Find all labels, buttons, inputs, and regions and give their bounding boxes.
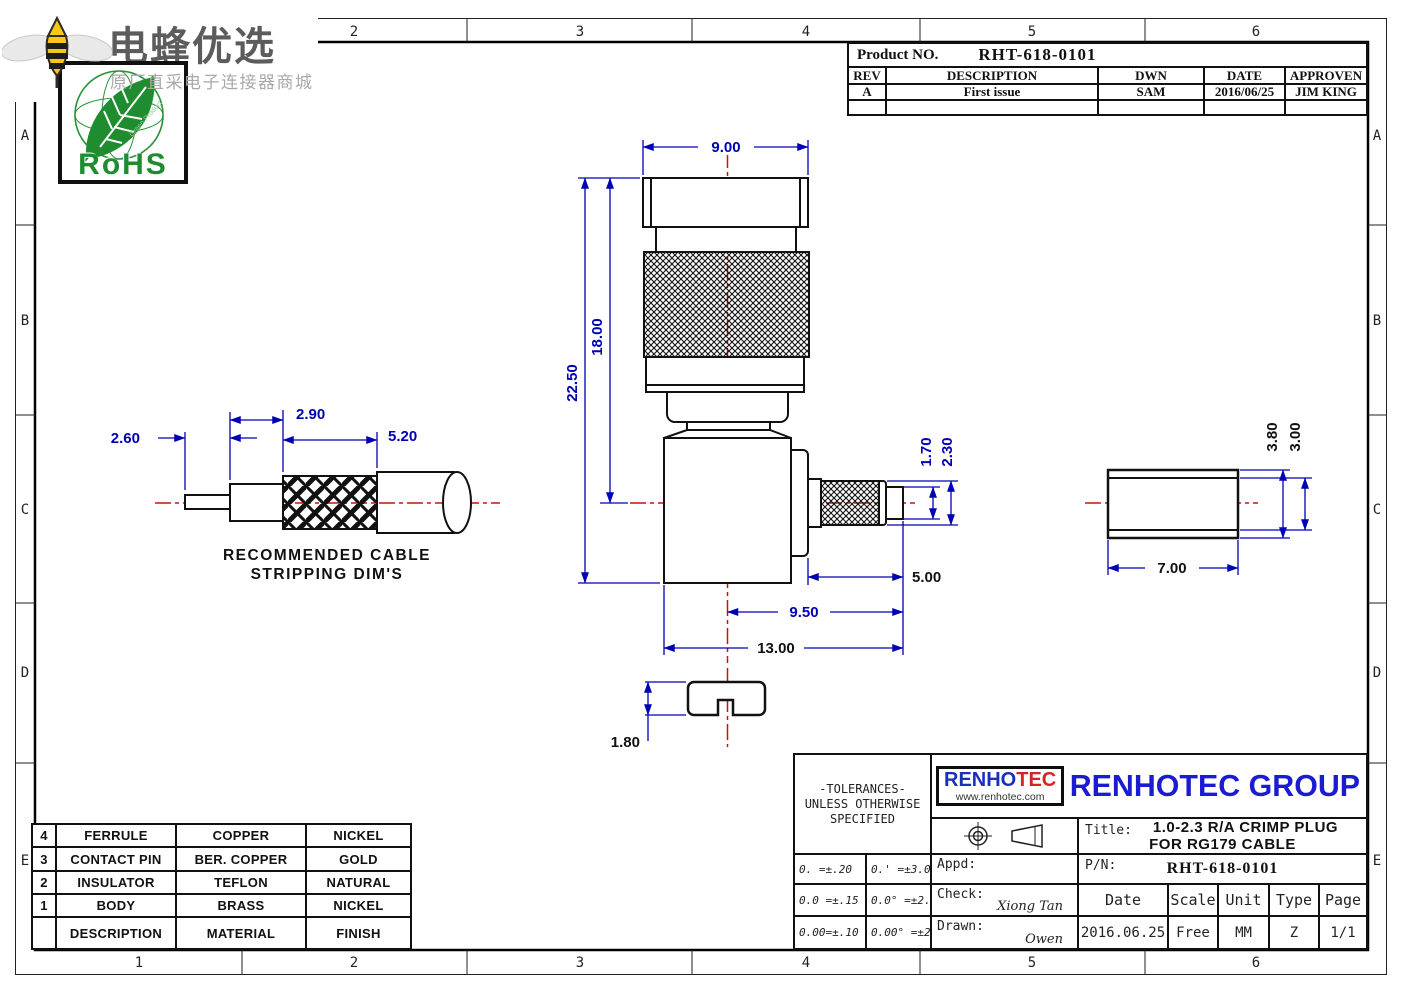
rohs-label: RoHS <box>62 148 184 182</box>
appd-cell: Appd: <box>932 855 1077 883</box>
type-value: Z <box>1270 917 1318 948</box>
projection-symbol-icon <box>950 822 1060 850</box>
zone-row-left: B <box>21 313 29 329</box>
part-material: COPPER <box>177 825 305 846</box>
product-no-value: RHT-618-0101 <box>978 45 1096 65</box>
zone-col-bottom: 5 <box>1028 955 1036 971</box>
part-item-no: 2 <box>33 872 55 893</box>
zone-row-left: C <box>21 502 29 518</box>
zone-row-right: D <box>1373 665 1381 681</box>
zone-row-left: A <box>21 128 30 144</box>
dim-body-len: 18.00 <box>589 318 606 356</box>
parts-col-material: MATERIAL <box>177 918 305 948</box>
zone-row-left: D <box>21 665 29 681</box>
part-description: BODY <box>57 895 175 916</box>
drawn-label: Drawn: <box>932 917 984 934</box>
rev-empty-cell <box>1099 101 1203 114</box>
rev-empty-cell <box>849 101 885 114</box>
part-description: CONTACT PIN <box>57 848 175 870</box>
part-finish: GOLD <box>307 848 410 870</box>
part-finish: NICKEL <box>307 895 410 916</box>
tolerances-header: -TOLERANCES- UNLESS OTHERWISE SPECIFIED <box>795 755 930 853</box>
check-cell: Check: Xiong Tan <box>932 885 1077 915</box>
stripping-note: RECOMMENDED CABLE STRIPPING DIM'S <box>223 547 431 583</box>
renhotec-logo-part2: TEC <box>1016 769 1056 791</box>
rev-header-description: DESCRIPTION <box>887 68 1097 83</box>
zone-row-left: E <box>21 853 29 869</box>
pn-cell: P/N: RHT-618-0101 <box>1079 855 1366 883</box>
part-material: TEFLON <box>177 872 305 893</box>
rev-header-rev: REV <box>849 68 885 83</box>
part-item-no <box>33 918 55 948</box>
product-no-label: Product NO. <box>849 47 938 64</box>
company-banner: RENHOTEC www.renhotec.com RENHOTEC GROUP <box>932 755 1366 817</box>
part-material: BRASS <box>177 895 305 916</box>
rev-empty-cell <box>1286 101 1366 114</box>
slot-bottom-view <box>688 682 765 715</box>
zone-col-top: 4 <box>802 24 810 40</box>
parts-col-finish: FINISH <box>307 918 410 948</box>
pn-label: P/N: <box>1085 858 1116 873</box>
zone-col-top: 3 <box>576 24 584 40</box>
appd-label: Appd: <box>932 855 976 872</box>
drawing-title-line2: FOR RG179 CABLE <box>1149 836 1296 853</box>
dim-total-width: 13.00 <box>757 640 795 657</box>
page-value: 1/1 <box>1320 917 1366 948</box>
zone-row-right: A <box>1373 128 1382 144</box>
part-item-no: 4 <box>33 825 55 846</box>
unit-value: MM <box>1219 917 1268 948</box>
rev-header-dwn: DWN <box>1099 68 1203 83</box>
rev-empty-cell <box>887 101 1097 114</box>
unit-header: Unit <box>1219 885 1268 915</box>
drawing-sheet: 1 2 3 4 5 6 1 2 3 4 5 6 A B C D E A B C … <box>0 0 1403 992</box>
zone-col-bottom: 4 <box>802 955 810 971</box>
dim-strip-dielectric: 2.90 <box>296 406 325 423</box>
parts-col-description: DESCRIPTION <box>57 918 175 948</box>
dim-barrel-len: 5.00 <box>912 569 941 586</box>
tolerances-line2: UNLESS OTHERWISE <box>805 797 921 812</box>
tolerance-value: 0.0 =±.15 <box>795 885 865 915</box>
date-value: 2016.06.25 <box>1079 917 1167 948</box>
rev-cell: 2016/06/25 <box>1205 85 1284 99</box>
dim-slot-depth: 1.80 <box>611 734 640 751</box>
tolerance-value: 0. =±.20 <box>795 855 865 883</box>
dim-ferrule-len: 7.00 <box>1157 560 1186 577</box>
date-header: Date <box>1079 885 1167 915</box>
pn-value: RHT-618-0101 <box>1167 860 1279 878</box>
bee-logo-icon <box>2 12 112 104</box>
part-description: FERRULE <box>57 825 175 846</box>
scale-value: Free <box>1169 917 1217 948</box>
ferrule-view <box>1108 470 1238 538</box>
part-description: INSULATOR <box>57 872 175 893</box>
parts-table: 4 FERRULE COPPER NICKEL 3 CONTACT PIN BE… <box>31 823 412 950</box>
tolerances-line3: SPECIFIED <box>830 812 895 827</box>
rev-cell: First issue <box>887 85 1097 99</box>
title-label: Title: <box>1085 822 1132 839</box>
page-header: Page <box>1320 885 1366 915</box>
part-material: BER. COPPER <box>177 848 305 870</box>
dim-ferrule-od: 3.80 <box>1264 422 1281 451</box>
stripping-note-line1: RECOMMENDED CABLE <box>223 547 431 564</box>
dim-strip-pin: 2.60 <box>111 430 140 447</box>
stripping-note-line2: STRIPPING DIM'S <box>251 566 404 583</box>
zone-col-top: 2 <box>350 24 358 40</box>
rev-cell: SAM <box>1099 85 1203 99</box>
tolerance-value: 0.0° =±2.5° <box>867 885 930 915</box>
zone-col-bottom: 6 <box>1252 955 1260 971</box>
connector-front-view <box>643 178 903 583</box>
title-block: -TOLERANCES- UNLESS OTHERWISE SPECIFIED … <box>793 753 1368 950</box>
dim-side-len: 9.50 <box>789 604 818 621</box>
tolerance-value: 0.00° =±2.0° <box>867 917 930 948</box>
renhotec-url: www.renhotec.com <box>944 792 1056 803</box>
part-finish: NATURAL <box>307 872 410 893</box>
tolerance-value: 0.00=±.10 <box>795 917 865 948</box>
scale-header: Scale <box>1169 885 1217 915</box>
projection-symbol-cell <box>932 819 1077 853</box>
part-finish: NICKEL <box>307 825 410 846</box>
brand-subtitle: 原厂直采电子连接器商城 <box>110 68 314 93</box>
check-label: Check: <box>932 885 984 902</box>
zone-row-right: E <box>1373 853 1381 869</box>
zone-row-right: C <box>1373 502 1381 518</box>
part-item-no: 3 <box>33 848 55 870</box>
dim-crimp-od: 2.30 <box>939 437 956 466</box>
rev-cell: A <box>849 85 885 99</box>
dim-ferrule-id: 3.00 <box>1287 422 1304 451</box>
drawn-cell: Drawn: Owen <box>932 917 1077 948</box>
company-name: RENHOTEC GROUP <box>1067 768 1363 804</box>
rev-empty-cell <box>1205 101 1284 114</box>
type-header: Type <box>1270 885 1318 915</box>
rev-header-approven: APPROVEN <box>1286 68 1366 83</box>
renhotec-logo-part1: RENHO <box>944 769 1016 791</box>
zone-col-top: 6 <box>1252 24 1260 40</box>
tolerances-line1: -TOLERANCES- <box>819 782 906 797</box>
zone-col-bottom: 2 <box>350 955 358 971</box>
rev-header-date: DATE <box>1205 68 1284 83</box>
drawing-title-line1: 1.0-2.3 R/A CRIMP PLUG <box>1107 819 1338 836</box>
title-cell: Title: 1.0-2.3 R/A CRIMP PLUG FOR RG179 … <box>1079 819 1366 853</box>
dim-crimp-id: 1.70 <box>918 437 935 466</box>
tolerance-value: 0.' =±3.0' <box>867 855 930 883</box>
zone-col-top: 5 <box>1028 24 1036 40</box>
dim-strip-braid: 5.20 <box>388 428 417 445</box>
part-item-no: 1 <box>33 895 55 916</box>
check-name: Xiong Tan <box>997 899 1063 914</box>
zone-row-right: B <box>1373 313 1381 329</box>
product-no-row: Product NO. RHT-618-0101 <box>849 44 1366 66</box>
zone-col-bottom: 1 <box>135 955 143 971</box>
zone-col-bottom: 3 <box>576 955 584 971</box>
drawn-name: Owen <box>1025 932 1063 947</box>
renhotec-logo: RENHOTEC www.renhotec.com <box>936 766 1064 806</box>
rev-cell: JIM KING <box>1286 85 1366 99</box>
dim-total-len: 22.50 <box>564 364 581 402</box>
revision-table: Product NO. RHT-618-0101 REV DESCRIPTION… <box>847 42 1368 116</box>
dim-cap-width: 9.00 <box>711 139 740 156</box>
